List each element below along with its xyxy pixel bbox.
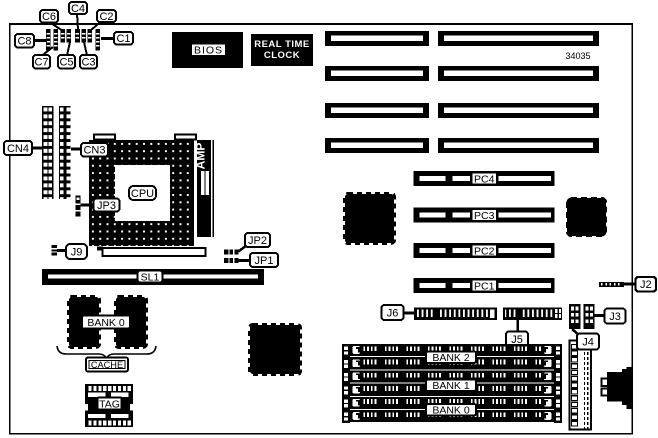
svg-text:BANK 1: BANK 1 [432,380,470,392]
svg-text:C3: C3 [81,57,95,69]
svg-text:C6: C6 [42,11,56,23]
svg-text:PC4: PC4 [474,173,495,185]
svg-text:AMP: AMP [194,143,208,170]
svg-text:CN4: CN4 [7,143,29,155]
svg-text:JP2: JP2 [248,235,267,247]
svg-text:CN3: CN3 [83,145,105,157]
svg-text:J2: J2 [640,279,652,291]
svg-text:JP3: JP3 [97,200,116,212]
svg-text:TAG: TAG [99,398,120,410]
svg-text:CLOCK: CLOCK [264,50,300,61]
svg-text:C1: C1 [116,33,130,45]
svg-text:C2: C2 [99,11,113,23]
svg-text:PC1: PC1 [474,280,495,292]
svg-text:JP1: JP1 [255,255,274,267]
svg-text:J3: J3 [609,311,621,323]
svg-text:BIOS: BIOS [194,45,223,57]
svg-text:J4: J4 [582,336,594,348]
svg-text:J9: J9 [71,246,83,258]
svg-text:PC2: PC2 [474,245,495,257]
svg-text:PC3: PC3 [474,210,495,222]
svg-text:BANK 2: BANK 2 [432,352,470,364]
svg-text:SL1: SL1 [141,271,160,283]
svg-text:BANK 0: BANK 0 [87,317,125,329]
svg-text:C5: C5 [59,57,73,69]
svg-text:J6: J6 [387,307,399,319]
svg-text:REAL TIME: REAL TIME [254,39,310,50]
svg-text:CPU: CPU [131,188,154,200]
svg-text:C7: C7 [34,57,48,69]
svg-text:C4: C4 [71,3,85,15]
svg-text:C8: C8 [17,36,31,48]
svg-text:BANK 0: BANK 0 [432,405,470,417]
svg-text:34035: 34035 [565,51,590,61]
